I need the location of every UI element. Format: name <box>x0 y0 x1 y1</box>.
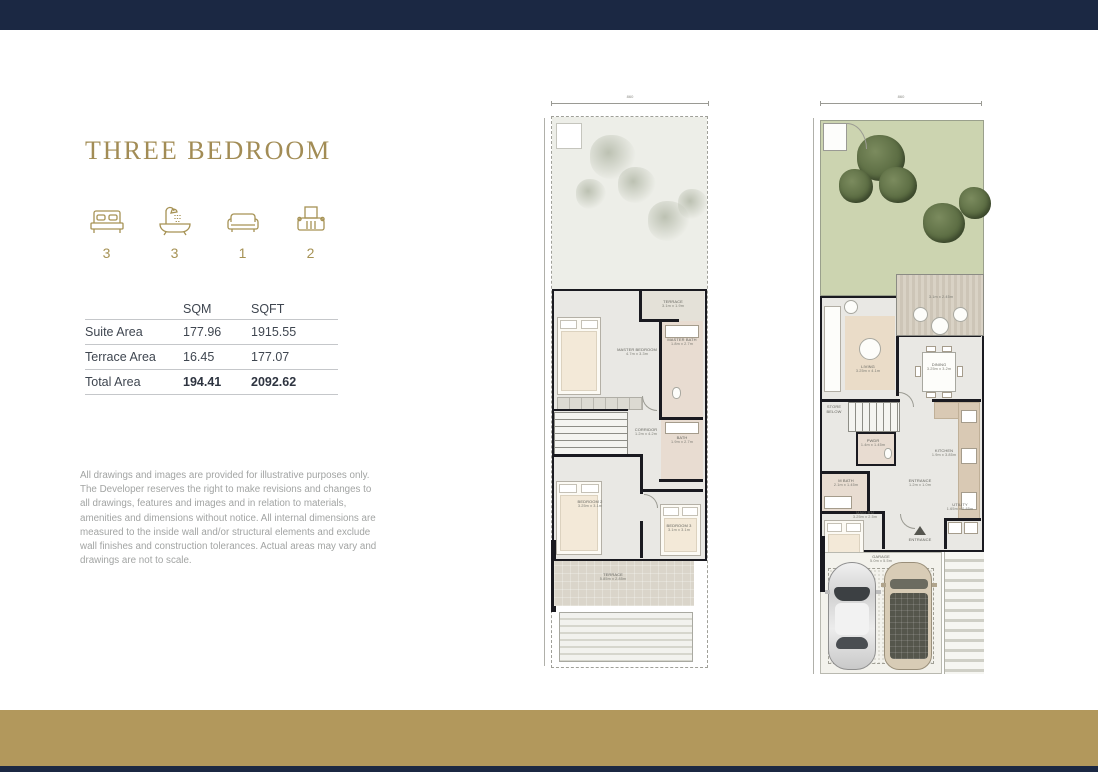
room-label-bedroom-2: BEDROOM 2 3.25m x 3.1m <box>564 499 616 509</box>
toilet <box>884 448 892 459</box>
parking-count: 2 <box>282 245 340 261</box>
bedrooms-count: 3 <box>78 245 136 261</box>
tree <box>839 169 873 203</box>
staircase <box>848 402 900 432</box>
row-label: Suite Area <box>85 325 183 339</box>
armchair <box>844 300 858 314</box>
roof-garden <box>552 117 707 289</box>
patio-table <box>931 317 949 335</box>
row-sqm: 177.96 <box>183 325 251 339</box>
table-row-suite-area: Suite Area 177.96 1915.55 <box>85 320 338 345</box>
room-label-store-below: STORE BELOW <box>824 404 844 414</box>
entrance-arrow <box>914 526 926 535</box>
room-label-bath: BATH 1.9m x 2.7m <box>663 435 701 445</box>
door-arc <box>900 514 915 529</box>
covered-terrace: 3.1m x 2.45m <box>896 274 984 336</box>
row-label: Terrace Area <box>85 350 183 364</box>
room-label-powder: PWDR 1.4m x 1.45m <box>856 438 890 448</box>
coffee-table <box>859 338 881 360</box>
toilet <box>672 387 681 399</box>
dimension-value: 860 <box>551 94 709 99</box>
staircase <box>554 412 628 456</box>
row-sqm: 16.45 <box>183 350 251 364</box>
tree <box>618 167 656 203</box>
area-table-header: SQM SQFT <box>85 298 338 320</box>
dimension-line-top: 860 <box>551 96 709 106</box>
living-count: 1 <box>214 245 272 261</box>
feature-living: 1 <box>214 204 272 261</box>
room-label-maid-room: MAID RM 3.25m x 2.5m <box>842 510 888 520</box>
dryer <box>964 522 978 534</box>
sqm-header: SQM <box>183 302 251 316</box>
dining-chair <box>926 346 936 352</box>
room-label-corridor: CORRIDOR 1.2m x 4.2m <box>628 427 664 437</box>
room-label-terrace-lower: TERRACE 5.85m x 2.85m <box>583 572 643 582</box>
sofa-icon <box>224 204 262 238</box>
door-arc <box>642 396 657 411</box>
dining-chair <box>926 392 936 398</box>
room-label-master-bath: MASTER BATH 1.8m x 2.7m <box>662 337 702 347</box>
driveway <box>944 552 984 674</box>
car-icon <box>292 204 330 238</box>
row-sqft: 1915.55 <box>251 325 338 339</box>
room-label-maid-bath: M BATH 2.1m x 1.45m <box>826 478 866 488</box>
room-label-entrance: ENTRANCE <box>898 537 942 542</box>
car-van <box>884 562 932 670</box>
patio-chair <box>953 307 968 322</box>
first-floor-plan: 860 TERRACE 3.1m x 1.9m <box>543 96 715 674</box>
tree <box>959 187 991 219</box>
table-row-total-area: Total Area 194.41 2092.62 <box>85 370 338 395</box>
room-label-garage: GARAGE 5.0m x 5.5m <box>850 554 912 564</box>
tree <box>879 167 917 203</box>
bath-icon <box>156 204 194 238</box>
room-label-bedroom-3: BEDROOM 3 3.1m x 3.1m <box>655 523 703 533</box>
dimension-line-top: 860 <box>820 96 982 106</box>
tree <box>576 179 606 209</box>
room-label-living: LIVING 3.25m x 4.1m <box>838 364 898 374</box>
bottom-gold-bar <box>0 710 1098 766</box>
room-label-kitchen: KITCHEN 1.9m x 3.85m <box>924 448 964 458</box>
skylight <box>556 123 582 149</box>
table-row-terrace-area: Terrace Area 16.45 177.07 <box>85 345 338 370</box>
gate-swing-arc <box>847 123 867 149</box>
bed-2 <box>556 481 602 555</box>
building-first-floor: TERRACE 3.1m x 1.9m MASTER BEDROOM 4.7m … <box>552 289 707 561</box>
row-sqft: 177.07 <box>251 350 338 364</box>
bathrooms-count: 3 <box>146 245 204 261</box>
patio-chair <box>913 307 928 322</box>
feature-parking: 2 <box>282 204 340 261</box>
garden <box>820 120 984 296</box>
page-title: THREE BEDROOM <box>85 136 331 166</box>
room-label-covered-terrace: 3.1m x 2.45m <box>919 295 963 300</box>
top-navy-bar <box>0 0 1098 30</box>
pergola <box>559 612 693 662</box>
bed-master <box>557 317 601 395</box>
car-silver <box>828 562 876 670</box>
terrace-lower <box>554 561 694 606</box>
sqft-header: SQFT <box>251 302 338 316</box>
garden-gate <box>823 123 847 151</box>
feature-bathrooms: 3 <box>146 204 204 261</box>
feature-icons-row: 3 3 1 <box>78 204 340 261</box>
ground-floor-plan: 860 LIVING 3.25m x 4.1m <box>812 96 988 680</box>
washer <box>948 522 962 534</box>
room-label-master-bedroom: MASTER BEDROOM 4.7m x 3.3m <box>606 347 668 357</box>
dimension-value: 860 <box>820 94 982 99</box>
room-label-dining: DINING 3.25m x 3.2m <box>918 362 960 372</box>
bathtub <box>824 496 852 509</box>
row-sqm: 194.41 <box>183 375 251 389</box>
dimension-line-left <box>813 118 814 674</box>
door-arc <box>644 494 658 508</box>
row-sqft: 2092.62 <box>251 375 338 389</box>
door-arc <box>899 392 914 407</box>
room-label-entrance-hall: ENTRANCE 1.2m x 1.0m <box>898 478 942 488</box>
bathtub <box>665 422 699 434</box>
kitchen-sink <box>961 410 977 423</box>
bottom-navy-strip <box>0 766 1098 772</box>
room-label-terrace-upper: TERRACE 3.1m x 1.9m <box>646 299 700 309</box>
dimension-line-left <box>544 118 545 666</box>
dining-chair <box>942 346 952 352</box>
dining-chair <box>942 392 952 398</box>
bed-icon <box>88 204 126 238</box>
brochure-page: THREE BEDROOM 3 3 <box>0 0 1098 772</box>
area-table: SQM SQFT Suite Area 177.96 1915.55 Terra… <box>85 298 338 395</box>
garage-zone: GARAGE 5.0m x 5.5m <box>820 552 984 674</box>
feature-bedrooms: 3 <box>78 204 136 261</box>
disclaimer-text: All drawings and images are provided for… <box>80 469 380 568</box>
sofa <box>824 306 841 392</box>
room-label-utility: UTILITY 1.65m x 0.85m <box>940 502 980 512</box>
tree <box>678 189 708 219</box>
row-label: Total Area <box>85 375 183 389</box>
tree <box>923 203 965 243</box>
